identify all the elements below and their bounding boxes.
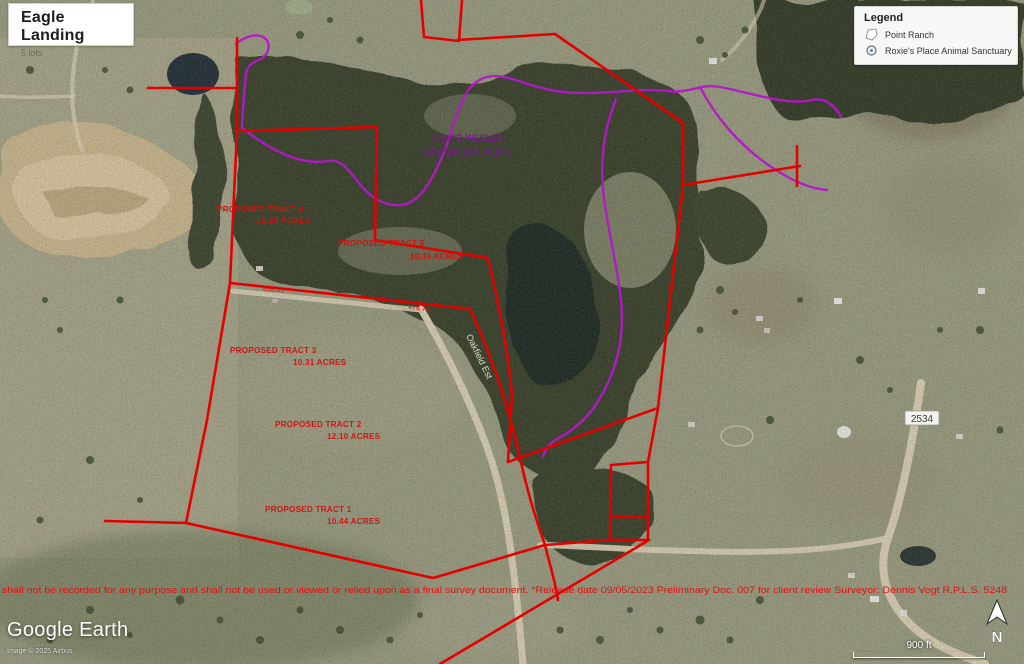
tract-label-4: PROPOSED TRACT 4 bbox=[217, 205, 304, 214]
north-arrow: N bbox=[982, 598, 1012, 646]
tract-label-5: PROPOSED TRACT 5 bbox=[338, 239, 425, 248]
survey-label-line1: FLOYD WESLEY bbox=[432, 133, 503, 143]
north-arrow-icon bbox=[987, 600, 1007, 624]
tract-label-3: PROPOSED TRACT 3 bbox=[230, 346, 317, 355]
road-shield-2534: 2534 bbox=[905, 411, 939, 425]
disclaimer-text: shall not be recorded for any purpose an… bbox=[2, 585, 1007, 595]
title-card: Eagle Landing 5 lots bbox=[8, 3, 134, 46]
page-title: Eagle Landing bbox=[21, 9, 129, 45]
tract-label-1: PROPOSED TRACT 1 bbox=[265, 505, 352, 514]
tract-acres-2: 12.10 ACRES bbox=[327, 432, 381, 441]
polygon-outline-icon bbox=[864, 28, 879, 41]
road-shield-label: 2534 bbox=[911, 414, 934, 425]
scale-bar: 900 ft bbox=[853, 640, 985, 658]
legend-title: Legend bbox=[864, 12, 1010, 24]
tract-acres-4: 12.24 ACRES bbox=[257, 216, 311, 225]
north-label: N bbox=[992, 629, 1003, 646]
lot-count: 5 lots bbox=[21, 48, 129, 58]
dimension-label-1: 658.65 bbox=[263, 286, 285, 294]
map-canvas[interactable]: PROPOSED TRACT 4 12.24 ACRES PROPOSED TR… bbox=[0, 0, 1024, 664]
legend-item-label: Point Ranch bbox=[885, 30, 934, 40]
legend-item-label: Roxie's Place Animal Sanctuary bbox=[885, 46, 1012, 56]
legend-item: Roxie's Place Animal Sanctuary bbox=[864, 44, 1010, 57]
google-earth-logo: Google Earth bbox=[7, 619, 128, 642]
legend: Legend Point Ranch Roxie's Place Animal … bbox=[854, 6, 1018, 65]
tract-acres-5: 10.16 ACRES bbox=[410, 252, 464, 261]
circle-marker-icon bbox=[864, 44, 879, 57]
tract-acres-3: 10.31 ACRES bbox=[293, 358, 347, 367]
scale-label: 900 ft bbox=[853, 640, 985, 651]
legend-item: Point Ranch bbox=[864, 28, 1010, 41]
tract-acres-1: 10.44 ACRES bbox=[327, 517, 381, 526]
google-earth-view: PROPOSED TRACT 4 12.24 ACRES PROPOSED TR… bbox=[0, 0, 1024, 664]
scale-line bbox=[853, 652, 985, 658]
tract-label-2: PROPOSED TRACT 2 bbox=[275, 420, 362, 429]
imagery-copyright: Image © 2025 Airbus bbox=[7, 648, 72, 655]
terrain-layer bbox=[0, 0, 1024, 664]
survey-label-line2: CARTER SVY, A-173 bbox=[423, 147, 509, 157]
